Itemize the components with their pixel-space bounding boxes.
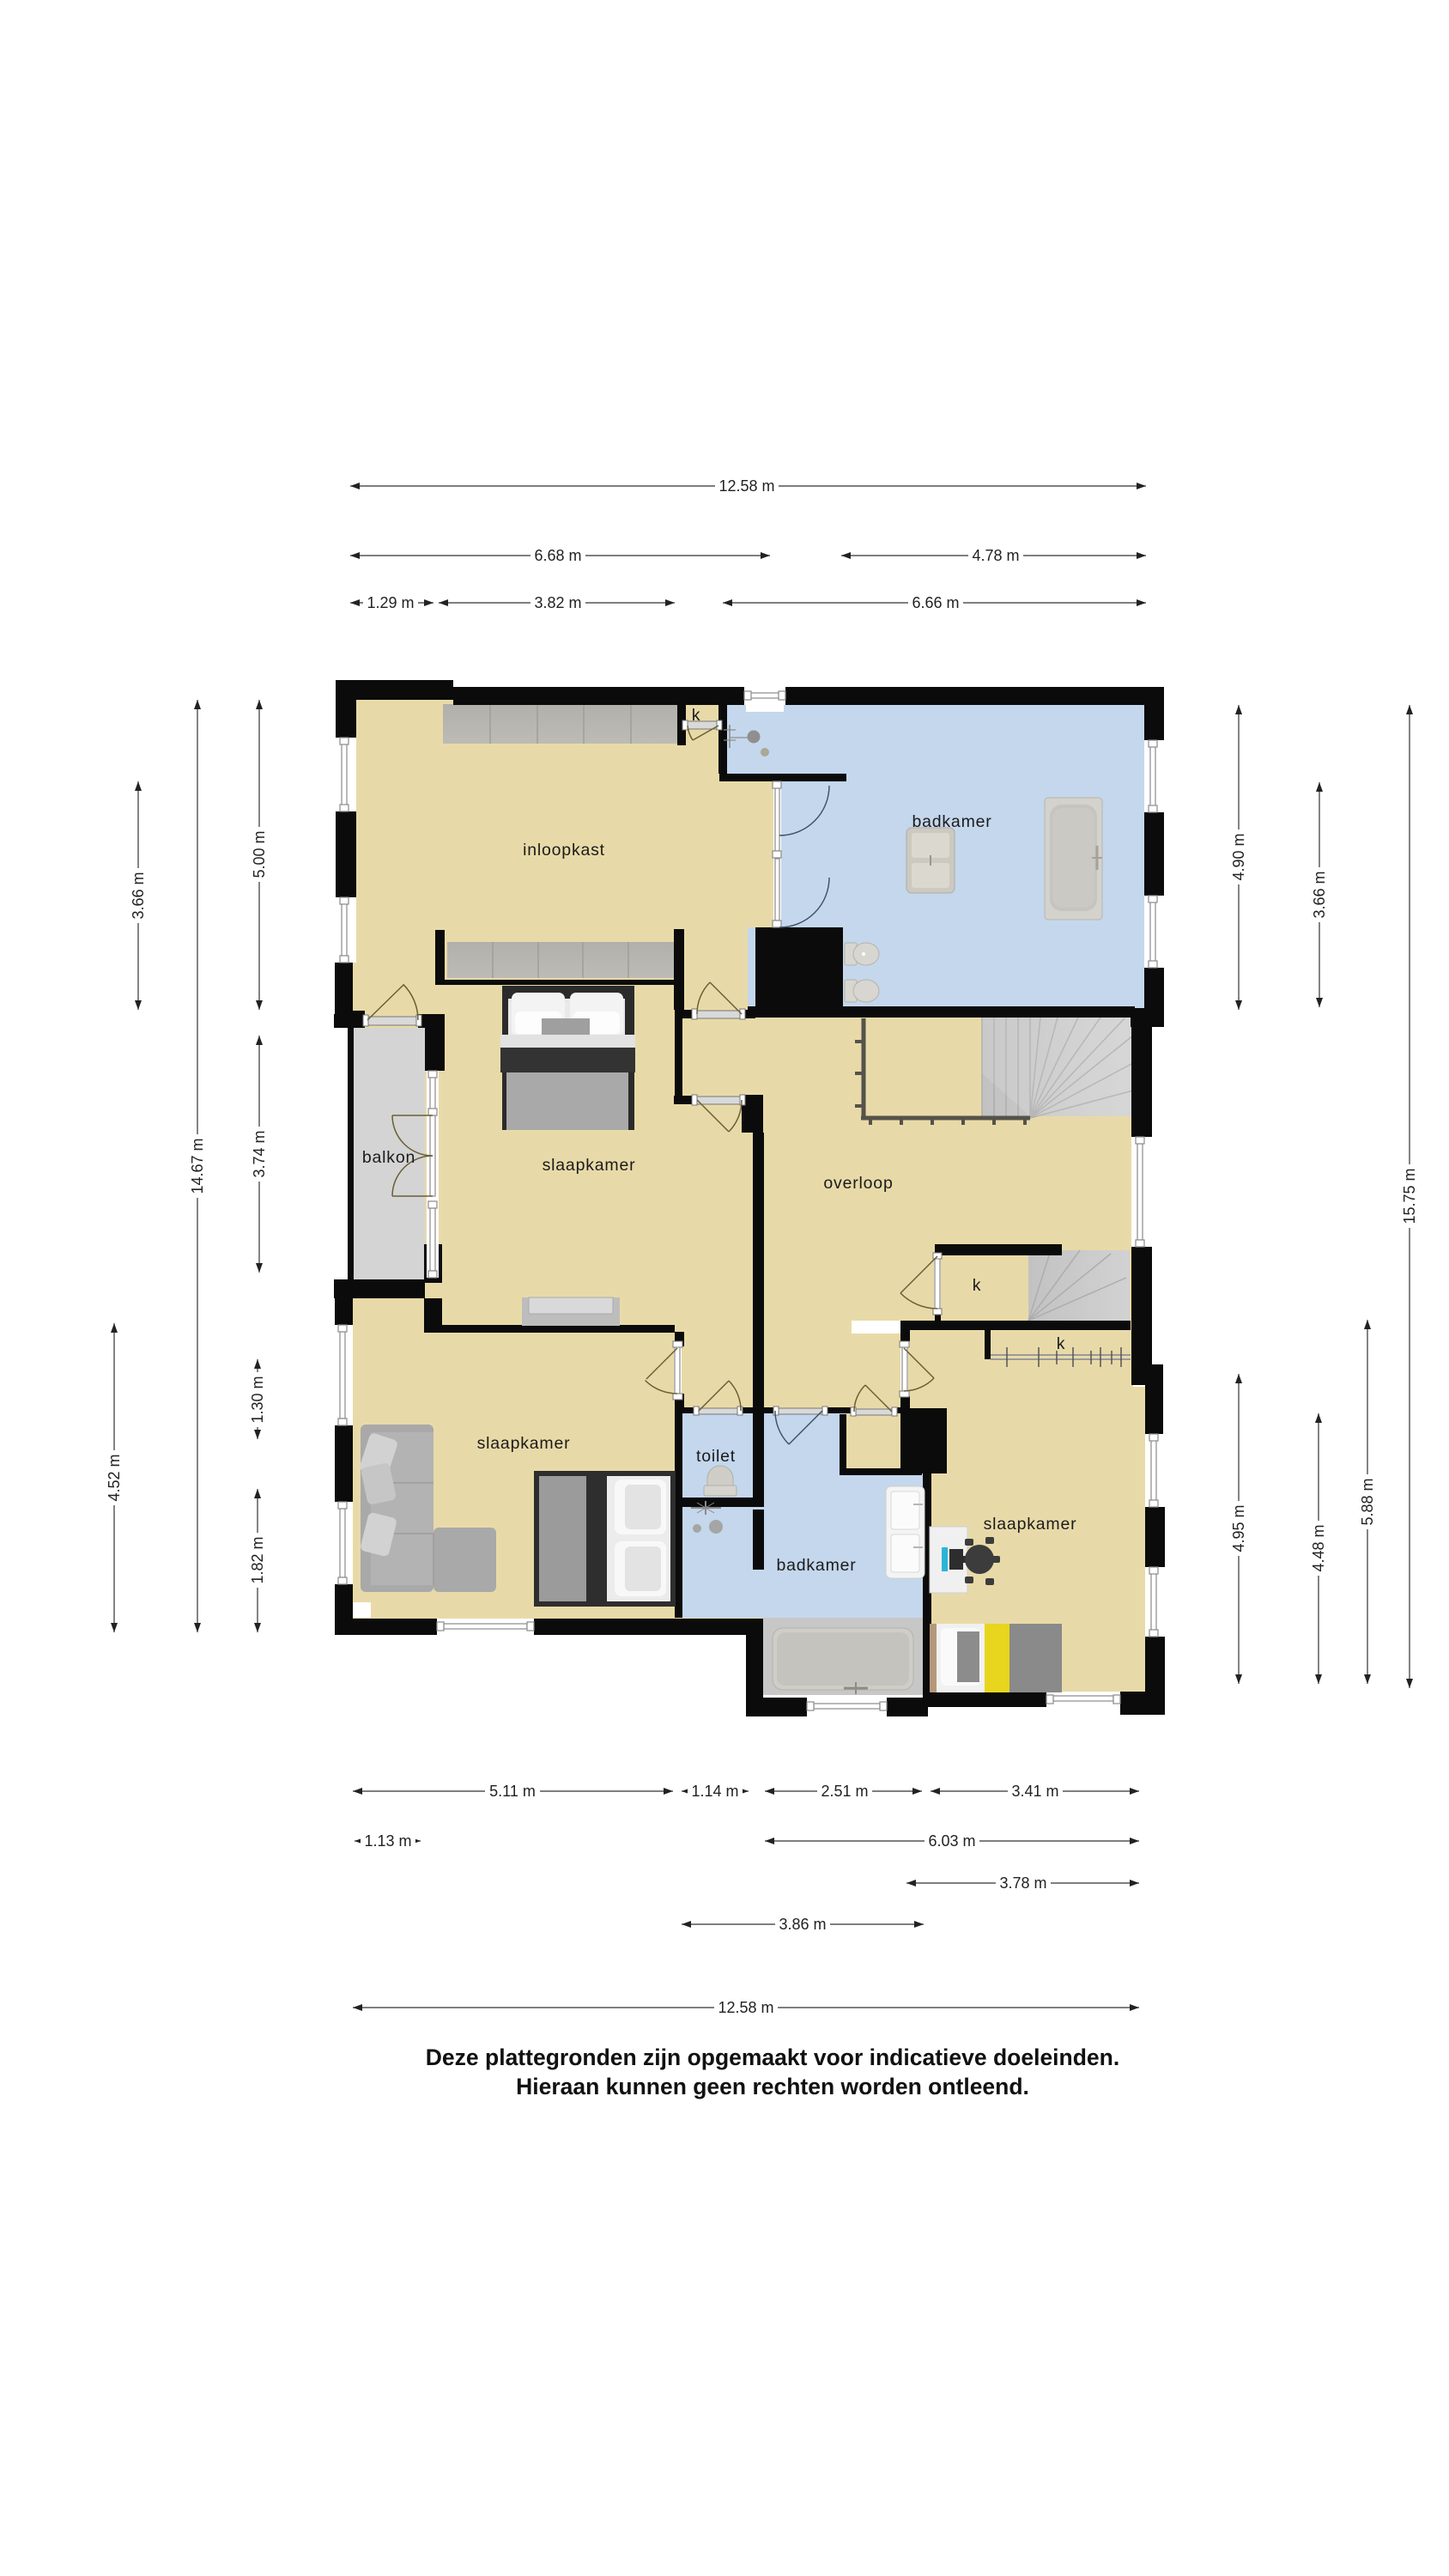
svg-text:overloop: overloop xyxy=(823,1174,893,1193)
svg-text:balkon: balkon xyxy=(362,1148,415,1167)
svg-text:14.67 m: 14.67 m xyxy=(189,1138,206,1194)
svg-text:1.30 m: 1.30 m xyxy=(249,1376,266,1423)
svg-text:1.82 m: 1.82 m xyxy=(249,1536,266,1583)
svg-text:5.00 m: 5.00 m xyxy=(251,830,268,878)
svg-text:5.11 m: 5.11 m xyxy=(489,1783,536,1800)
svg-text:inloopkast: inloopkast xyxy=(523,841,605,860)
svg-text:1.14 m: 1.14 m xyxy=(691,1783,738,1800)
svg-text:badkamer: badkamer xyxy=(776,1556,856,1575)
svg-text:15.75 m: 15.75 m xyxy=(1401,1168,1418,1224)
svg-text:slaapkamer: slaapkamer xyxy=(543,1156,636,1175)
svg-text:badkamer: badkamer xyxy=(912,812,991,831)
svg-text:4.90 m: 4.90 m xyxy=(1230,833,1247,880)
svg-text:k: k xyxy=(692,706,701,725)
svg-text:3.74 m: 3.74 m xyxy=(251,1130,268,1177)
svg-text:12.58 m: 12.58 m xyxy=(718,1999,773,2016)
svg-text:3.78 m: 3.78 m xyxy=(999,1874,1046,1892)
svg-text:6.66 m: 6.66 m xyxy=(912,594,959,611)
svg-text:Hieraan kunnen geen rechten wo: Hieraan kunnen geen rechten worden ontle… xyxy=(516,2074,1029,2099)
svg-text:6.68 m: 6.68 m xyxy=(534,547,581,564)
svg-text:slaapkamer: slaapkamer xyxy=(984,1515,1077,1534)
svg-text:k: k xyxy=(1057,1334,1066,1353)
svg-text:3.66 m: 3.66 m xyxy=(1311,871,1328,918)
svg-text:4.78 m: 4.78 m xyxy=(972,547,1019,564)
svg-text:1.13 m: 1.13 m xyxy=(364,1832,411,1850)
svg-text:4.95 m: 4.95 m xyxy=(1230,1504,1247,1552)
svg-text:4.48 m: 4.48 m xyxy=(1310,1524,1327,1571)
svg-text:1.29 m: 1.29 m xyxy=(367,594,414,611)
svg-text:3.82 m: 3.82 m xyxy=(534,594,581,611)
svg-text:Deze plattegronden zijn opgema: Deze plattegronden zijn opgemaakt voor i… xyxy=(426,2044,1119,2070)
svg-text:k: k xyxy=(973,1276,982,1295)
svg-text:4.52 m: 4.52 m xyxy=(106,1454,123,1501)
svg-text:slaapkamer: slaapkamer xyxy=(477,1434,571,1453)
svg-text:3.41 m: 3.41 m xyxy=(1011,1783,1058,1800)
svg-text:5.88 m: 5.88 m xyxy=(1359,1478,1376,1525)
svg-text:6.03 m: 6.03 m xyxy=(928,1832,975,1850)
svg-text:3.66 m: 3.66 m xyxy=(130,872,147,919)
svg-text:12.58 m: 12.58 m xyxy=(718,477,774,495)
svg-text:3.86 m: 3.86 m xyxy=(779,1916,826,1933)
svg-text:toilet: toilet xyxy=(696,1447,736,1466)
svg-text:2.51 m: 2.51 m xyxy=(821,1783,868,1800)
